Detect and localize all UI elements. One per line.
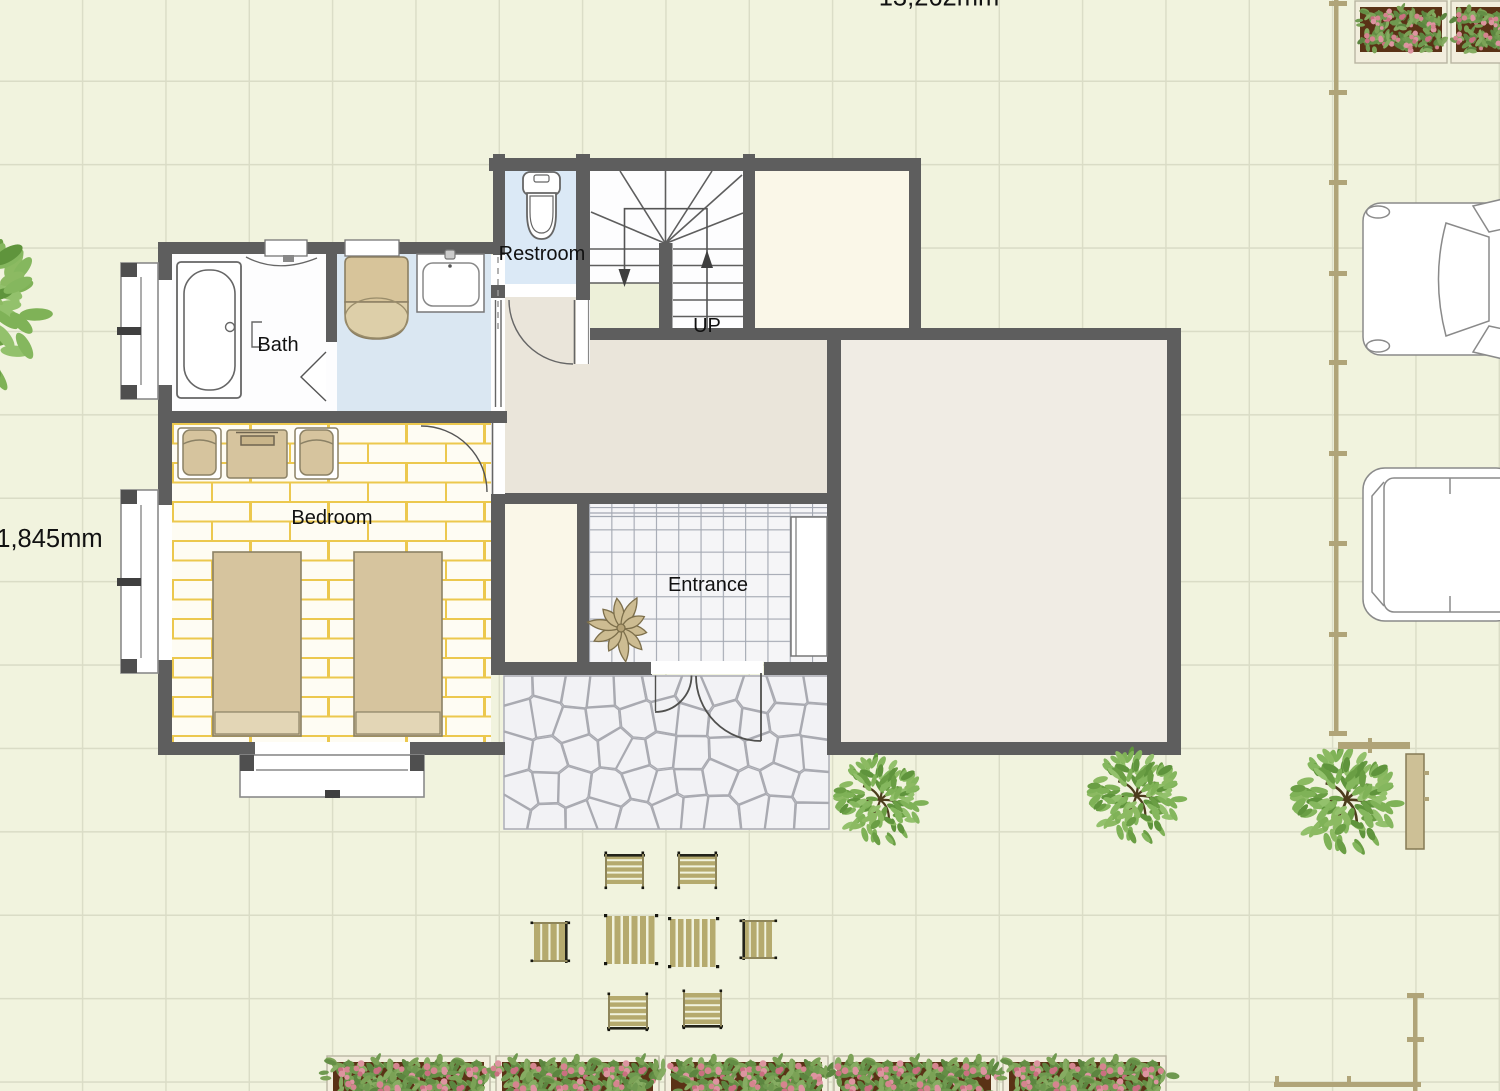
svg-text:Restroom: Restroom: [499, 243, 586, 265]
svg-text:Bath: Bath: [257, 334, 298, 356]
svg-text:13,262mm: 13,262mm: [879, 0, 999, 12]
svg-text:Bedroom: Bedroom: [291, 507, 372, 529]
svg-text:11,845mm: 11,845mm: [0, 525, 103, 553]
svg-text:UP: UP: [693, 315, 721, 337]
svg-text:Entrance: Entrance: [668, 574, 748, 596]
